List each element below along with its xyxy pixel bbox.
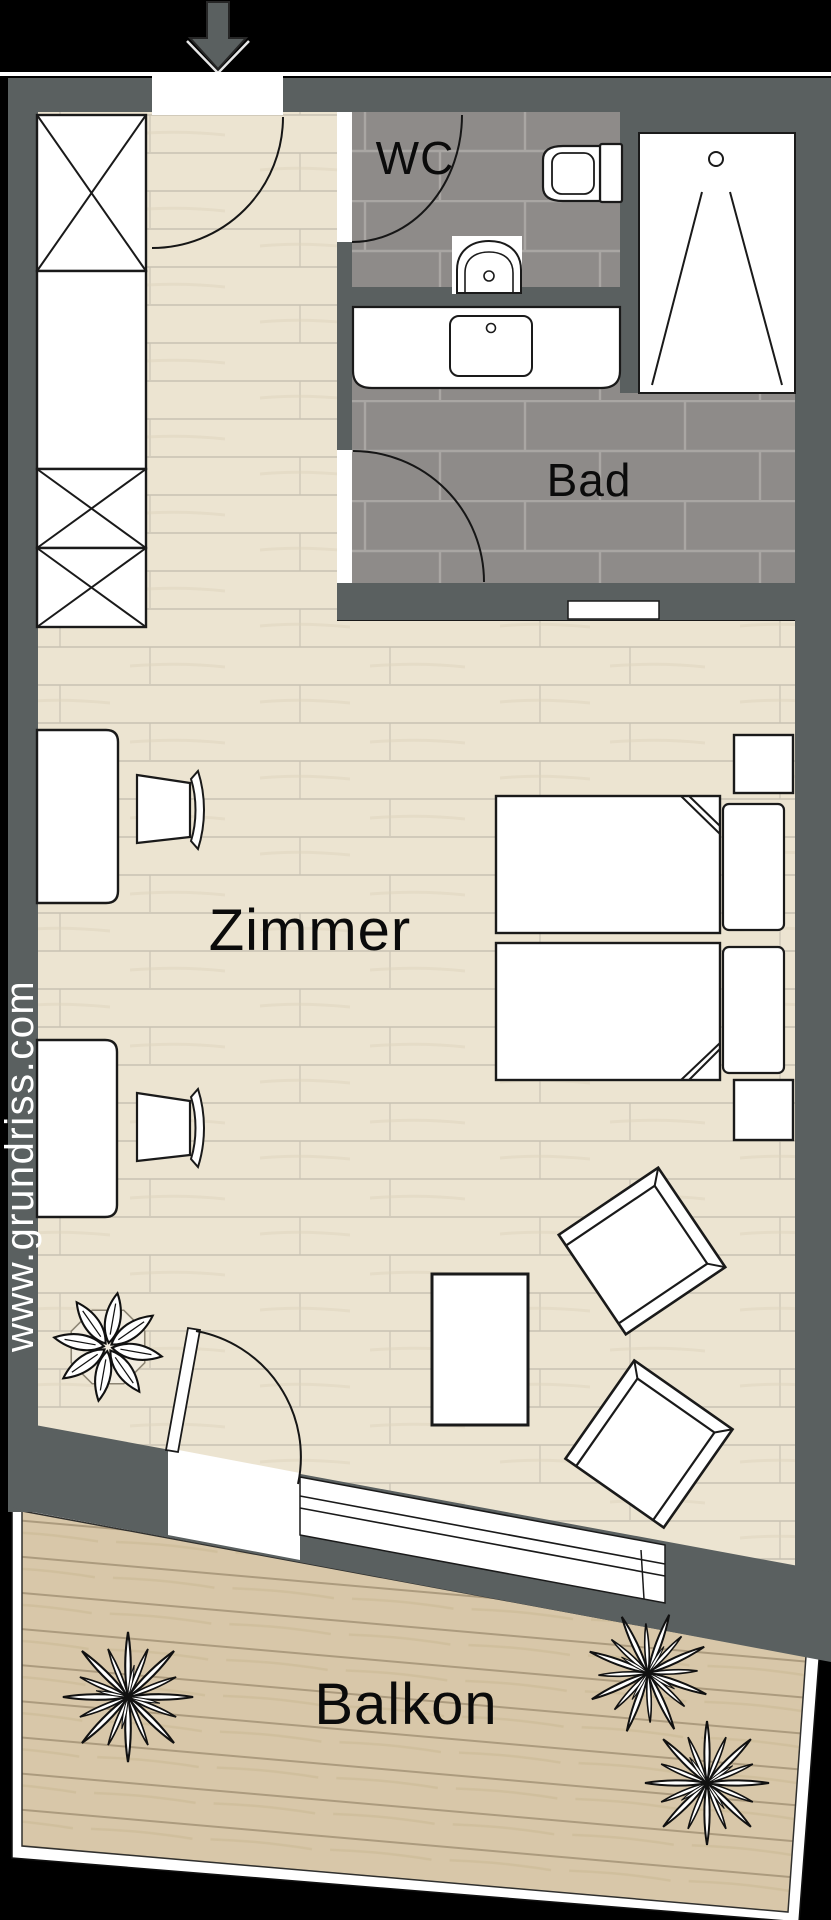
shower [639,133,795,393]
wardrobe [37,115,146,627]
plant-icon [63,1632,193,1762]
bed-2-pillow [723,947,784,1073]
wall-niche [568,601,659,619]
vanity-sink [353,307,620,388]
coffee-table [432,1274,528,1425]
wc-toilet [543,144,622,202]
bath-door-opening [337,450,352,583]
wc-door-opening [337,112,352,242]
desk-upper [37,730,118,903]
wardrobe-section-plain [37,271,146,469]
nightstand-lower [734,1080,793,1140]
bed-1-mattress [496,796,720,933]
wall-right [795,78,831,1576]
room-label-zimmer: Zimmer [209,898,412,963]
room-label-bad: Bad [547,454,632,506]
floor-plan: WC Bad Zimmer Balkon www.grundriss.com [0,0,831,1920]
floor-plan-page: WC Bad Zimmer Balkon www.grundriss.com [0,0,831,1920]
nightstand-upper [734,735,793,793]
room-label-balkon: Balkon [314,1672,497,1737]
watermark: www.grundriss.com [0,980,42,1353]
room-label-wc: WC [376,132,455,184]
wc-sink [452,236,522,294]
bed-1-pillow [723,804,784,930]
desk-lower [37,1040,117,1217]
bed-2-mattress [496,943,720,1080]
entrance-door-opening [152,72,283,115]
wall-top [8,78,831,112]
exterior-edge-line [0,72,831,76]
